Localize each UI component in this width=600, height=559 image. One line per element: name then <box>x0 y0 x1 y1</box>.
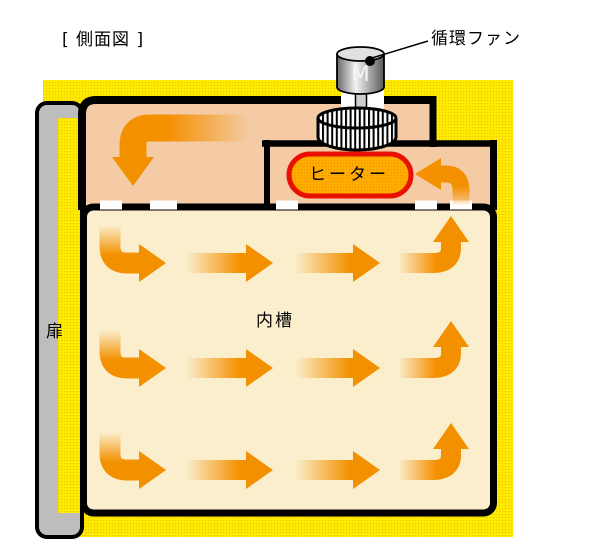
fan-blades <box>318 108 396 150</box>
inner-chamber-label: 内槽 <box>256 311 294 331</box>
motor-label: M <box>337 62 384 87</box>
diagram-canvas: [ 側面図 ] 循環ファン M ヒーター 内槽 扉 <box>0 0 600 559</box>
oven-airflow-diagram <box>0 0 600 559</box>
door-label: 扉 <box>46 322 63 342</box>
air-slits <box>100 201 472 210</box>
side-view-title: [ 側面図 ] <box>62 30 144 50</box>
body-left-wall <box>58 118 80 513</box>
heater-label: ヒーター <box>287 152 411 198</box>
fan-label: 循環ファン <box>431 29 521 49</box>
